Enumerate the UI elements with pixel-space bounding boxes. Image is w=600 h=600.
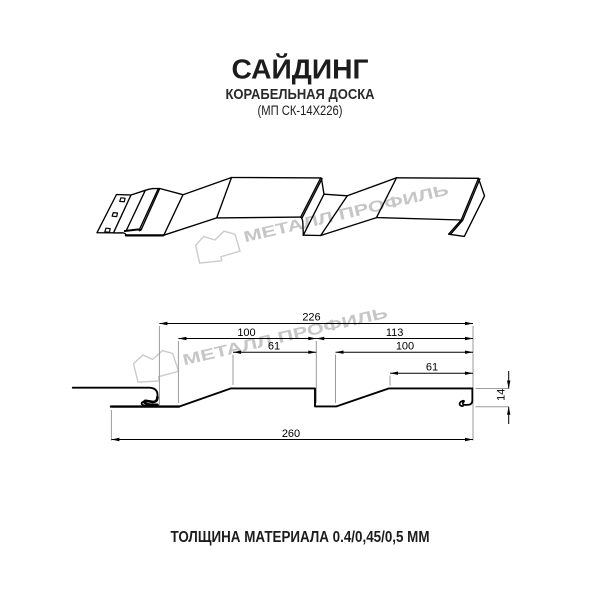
svg-text:(МП СК-14Х226): (МП СК-14Х226) <box>258 103 343 118</box>
svg-text:61: 61 <box>426 362 438 374</box>
svg-text:100: 100 <box>396 341 414 353</box>
svg-text:14: 14 <box>496 389 508 401</box>
svg-text:61: 61 <box>268 341 280 353</box>
svg-text:САЙДИНГ: САЙДИНГ <box>232 53 369 85</box>
svg-text:226: 226 <box>302 312 320 324</box>
svg-text:100: 100 <box>237 327 255 339</box>
svg-text:КОРАБЕЛЬНАЯ ДОСКА: КОРАБЕЛЬНАЯ ДОСКА <box>226 86 375 103</box>
svg-text:113: 113 <box>386 327 404 339</box>
svg-text:ТОЛЩИНА МАТЕРИАЛА 0.4/0,45/0,5: ТОЛЩИНА МАТЕРИАЛА 0.4/0,45/0,5 ММ <box>171 529 430 546</box>
svg-text:260: 260 <box>282 428 300 440</box>
